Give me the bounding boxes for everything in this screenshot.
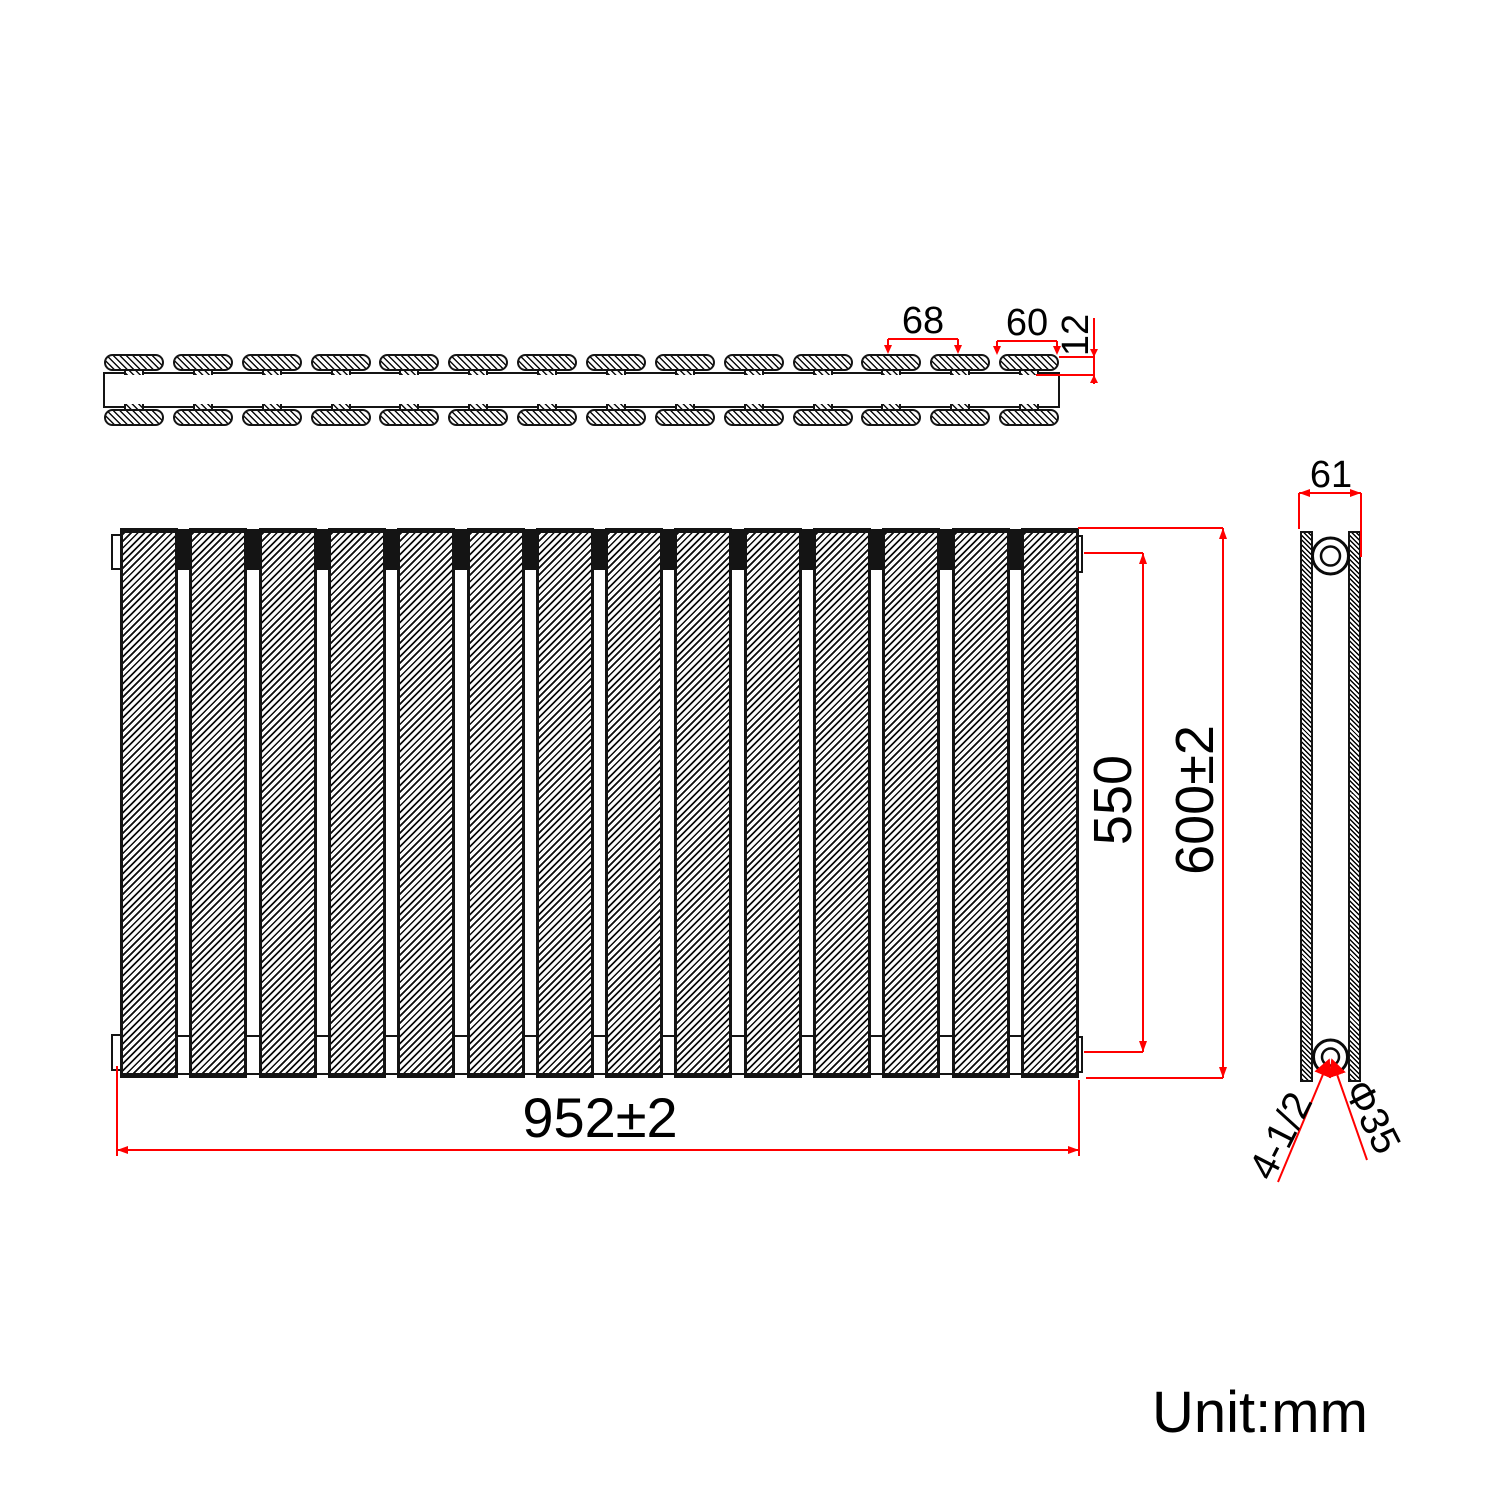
top-view-panel-back xyxy=(448,409,508,426)
top-view-panel-back xyxy=(517,409,577,426)
top-view-panel-back xyxy=(173,409,233,426)
top-view-panel-front xyxy=(517,354,577,371)
front-view-radiator-panel xyxy=(605,528,663,1078)
label-overall-height: 600±2 xyxy=(1164,700,1226,900)
top-view-panel-front xyxy=(793,354,853,371)
front-view-radiator-panel xyxy=(259,528,317,1078)
front-view-radiator-panel xyxy=(120,528,178,1078)
top-view-panel-back xyxy=(242,409,302,426)
top-view-panel-front xyxy=(311,354,371,371)
front-view-radiator-panel xyxy=(467,528,525,1078)
top-view-panel-front xyxy=(930,354,990,371)
front-view-radiator-panel xyxy=(328,528,386,1078)
top-view-panel-back xyxy=(655,409,715,426)
top-view-panel-front xyxy=(999,354,1059,371)
technical-drawing-canvas: 68 60 12 952±2 550 600±2 61 4-1/2 Φ35 Un… xyxy=(0,0,1500,1500)
top-view-panel-back xyxy=(311,409,371,426)
top-view-panel-front xyxy=(379,354,439,371)
front-view-radiator-panel xyxy=(813,528,871,1078)
top-view-panel-front xyxy=(242,354,302,371)
front-view-radiator-panel xyxy=(744,528,802,1078)
top-view-panel-back xyxy=(104,409,164,426)
top-view-panel-back xyxy=(861,409,921,426)
top-view-panel-back xyxy=(586,409,646,426)
side-panel-front-bar xyxy=(1300,531,1313,1082)
front-view-radiator-panel xyxy=(674,528,732,1078)
front-view-radiator-panel xyxy=(952,528,1010,1078)
front-view-radiator-panel xyxy=(536,528,594,1078)
front-view-radiator-panel xyxy=(189,528,247,1078)
front-view-radiator-panel xyxy=(397,528,455,1078)
label-inner-height: 550 xyxy=(1085,700,1141,900)
top-view-panel-front xyxy=(724,354,784,371)
label-depth: 61 xyxy=(1292,456,1370,496)
top-view-panel-front xyxy=(861,354,921,371)
top-view-panel-front xyxy=(104,354,164,371)
top-view-panel-back xyxy=(379,409,439,426)
top-view-panel-front xyxy=(655,354,715,371)
unit-label: Unit:mm xyxy=(1152,1379,1368,1446)
top-view-panel-front xyxy=(586,354,646,371)
label-overall-width: 952±2 xyxy=(448,1089,752,1148)
top-view-panel-back xyxy=(724,409,784,426)
label-panel-thickness: 12 xyxy=(1054,293,1100,377)
front-view-radiator-panel xyxy=(1021,528,1079,1078)
side-panel-back-bar xyxy=(1348,531,1361,1082)
top-view-panel-front xyxy=(173,354,233,371)
top-view-panel-back xyxy=(930,409,990,426)
top-view-panel-front xyxy=(448,354,508,371)
label-panel-pitch: 68 xyxy=(885,302,961,342)
top-view-panel-back xyxy=(793,409,853,426)
top-view-panel-back xyxy=(999,409,1059,426)
front-view-radiator-panel xyxy=(882,528,940,1078)
